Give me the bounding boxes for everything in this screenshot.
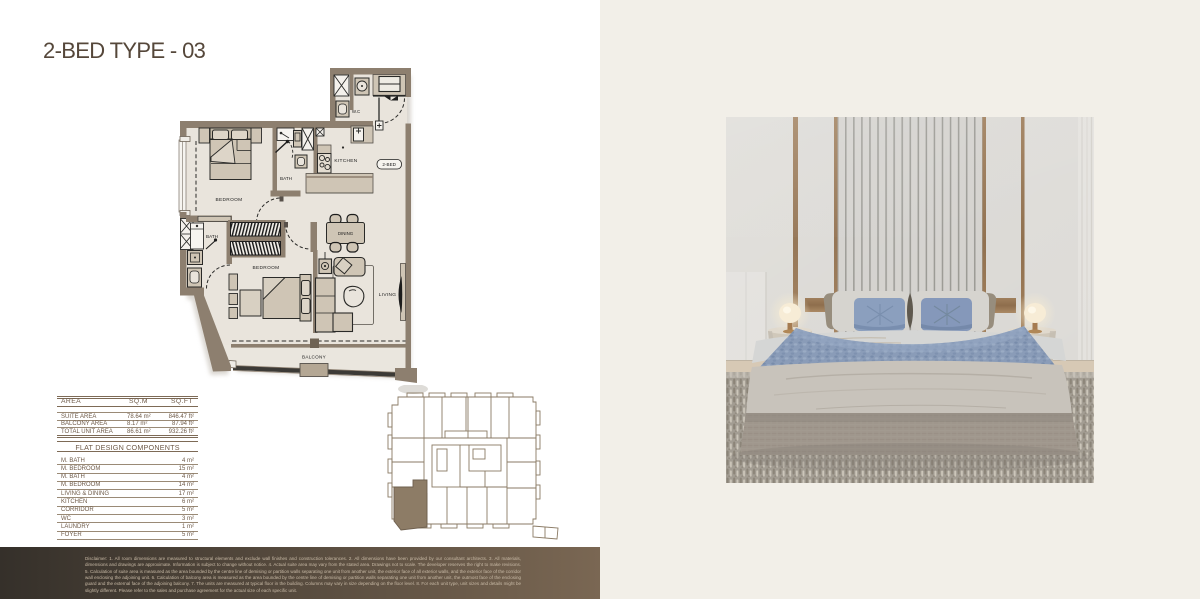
svg-text:BATH: BATH [206, 234, 218, 239]
svg-text:DINING: DINING [338, 231, 354, 236]
svg-text:BATH: BATH [280, 176, 292, 181]
svg-text:W.C: W.C [352, 109, 360, 114]
svg-text:BEDROOM: BEDROOM [216, 197, 243, 203]
svg-text:BALCONY: BALCONY [302, 355, 326, 360]
svg-text:LIVING: LIVING [379, 292, 397, 298]
svg-text:BEDROOM: BEDROOM [253, 265, 280, 271]
svg-text:2-BED: 2-BED [382, 162, 396, 167]
svg-text:KITCHEN: KITCHEN [334, 158, 357, 164]
